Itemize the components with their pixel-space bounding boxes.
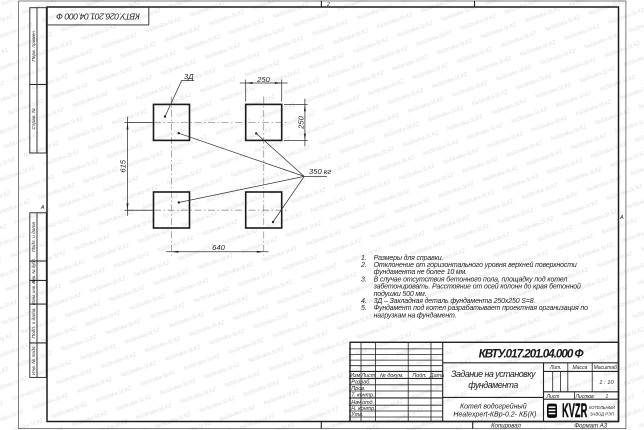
svg-text:4.: 4. — [361, 298, 367, 305]
svg-text:Задание на установку: Задание на установку — [451, 369, 536, 379]
svg-text:А: А — [40, 205, 45, 211]
svg-text:Подп.: Подп. — [412, 373, 426, 379]
svg-text:Утв.: Утв. — [350, 412, 363, 418]
svg-text:забетонировать. Расстояние от: забетонировать. Расстояние от осей колон… — [373, 283, 581, 291]
svg-text:3Д – Закладная деталь фундамен: 3Д – Закладная деталь фундамента 250х250… — [374, 297, 536, 305]
svg-text:Масштаб: Масштаб — [594, 365, 618, 371]
svg-text:КВТУ.017.201.04.000 Ф: КВТУ.017.201.04.000 Ф — [479, 347, 585, 360]
svg-text:Инв. № подл.: Инв. № подл. — [31, 345, 37, 375]
svg-text:Листов: Листов — [574, 394, 594, 400]
svg-text:2.: 2. — [360, 262, 367, 269]
svg-text:КВТУ.026.201.04.000 Ф: КВТУ.026.201.04.000 Ф — [56, 12, 140, 22]
svg-text:250: 250 — [256, 75, 270, 84]
svg-text:Изм: Изм — [350, 373, 360, 379]
svg-text:Перв. примен.: Перв. примен. — [31, 30, 37, 62]
svg-text:1 : 10: 1 : 10 — [599, 380, 614, 386]
svg-text:Подп. и дата: Подп. и дата — [31, 308, 37, 338]
svg-text:Взам. инв. №: Взам. инв. № — [31, 279, 36, 305]
svg-text:Фундамент под котел разрабатыв: Фундамент под котел разрабатывает проект… — [374, 304, 589, 312]
svg-text:Формат А3: Формат А3 — [574, 424, 607, 430]
svg-text:Справ. №: Справ. № — [31, 108, 37, 130]
svg-text:фундамента: фундамента — [468, 380, 518, 390]
svg-text:Дата: Дата — [429, 373, 444, 379]
svg-text:KVZR: KVZR — [562, 401, 587, 423]
svg-text:Heatexpert-КВр-0.2- КБ(К): Heatexpert-КВр-0.2- КБ(К) — [453, 412, 536, 419]
svg-text:3Д: 3Д — [184, 72, 194, 81]
svg-text:Лист: Лист — [360, 373, 375, 379]
svg-text:Размеры для справки.: Размеры для справки. — [374, 254, 444, 262]
svg-text:Масса: Масса — [573, 365, 588, 371]
svg-text:Лист: Лист — [546, 394, 560, 400]
svg-text:615: 615 — [119, 159, 128, 172]
svg-text:Копировал: Копировал — [491, 424, 521, 430]
svg-text:Отклонение от горизонтального: Отклонение от горизонтального уровня вер… — [374, 261, 577, 269]
svg-text:1: 1 — [606, 394, 609, 400]
svg-text:250: 250 — [296, 115, 305, 129]
svg-text:В случае отсутствия бетонного: В случае отсутствия бетонного пола, площ… — [374, 275, 568, 283]
svg-text:Лит.: Лит. — [549, 365, 562, 371]
svg-text:Н. контр.: Н. контр. — [351, 406, 375, 412]
svg-text:3.: 3. — [361, 276, 367, 283]
svg-text:нагрузкам на фундамент.: нагрузкам на фундамент. — [374, 311, 457, 319]
svg-text:Пров.: Пров. — [351, 386, 365, 392]
svg-text:Т. контр.: Т. контр. — [351, 393, 374, 399]
svg-text:ЗАВОД РЭП: ЗАВОД РЭП — [590, 412, 615, 417]
svg-text:Подп. и дата: Подп. и дата — [31, 222, 37, 252]
svg-text:фундамента не более 10 мм.: фундамента не более 10 мм. — [374, 268, 468, 276]
svg-text:Котел водогрейный: Котел водогрейный — [460, 402, 527, 410]
svg-text:КОТЕЛЬНЫЙ: КОТЕЛЬНЫЙ — [589, 405, 615, 410]
svg-text:Разраб.: Разраб. — [351, 380, 371, 386]
svg-text:640: 640 — [212, 243, 225, 252]
svg-text:№ докум.: № докум. — [380, 373, 404, 379]
svg-text:подушки 500 мм.: подушки 500 мм. — [374, 290, 427, 298]
svg-text:А: А — [619, 215, 624, 221]
svg-text:350 кг: 350 кг — [309, 167, 331, 176]
svg-text:5.: 5. — [361, 305, 367, 312]
svg-text:1.: 1. — [361, 255, 367, 262]
